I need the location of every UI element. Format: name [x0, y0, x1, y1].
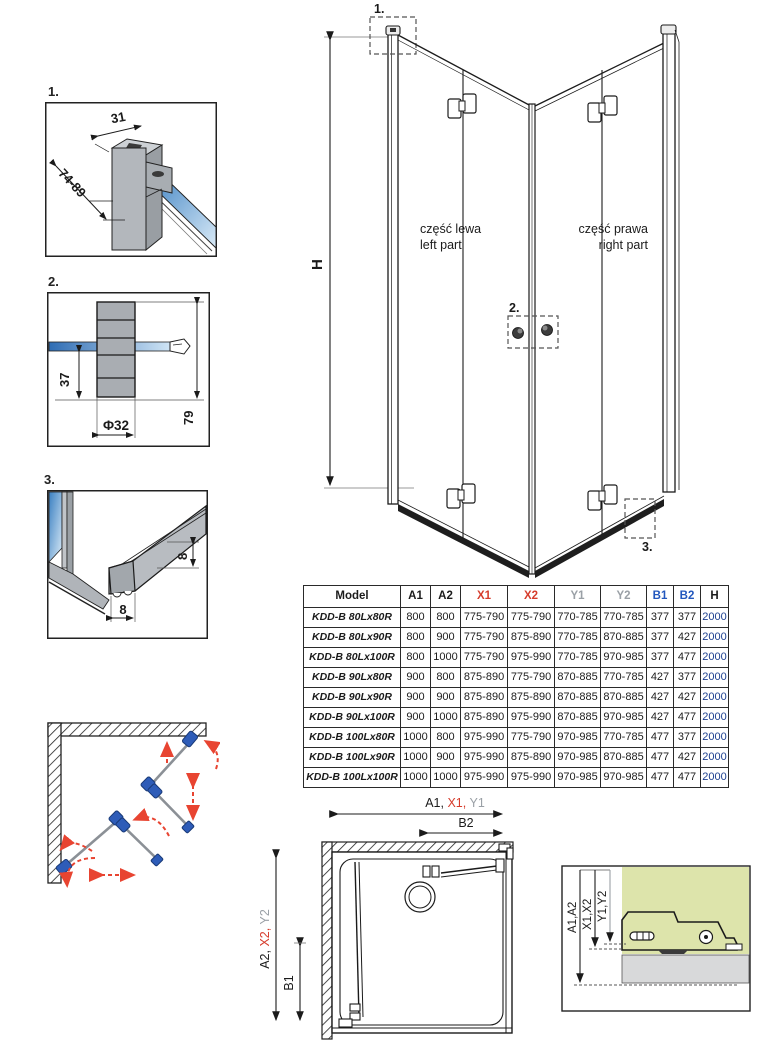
- col-b1: B1: [647, 586, 674, 608]
- svg-text:79: 79: [181, 411, 196, 425]
- svg-text:8: 8: [119, 602, 126, 617]
- col-b2: B2: [674, 586, 701, 608]
- table-row: KDD-B 90Lx100R9001000875-890975-990870-8…: [304, 708, 729, 728]
- table-row: KDD-B 100Lx100R10001000975-990975-990970…: [304, 768, 729, 788]
- dim-x1x2-label: X1,X2: [582, 899, 594, 930]
- main-enclosure-drawing: H 1.: [280, 0, 740, 585]
- dim-top-width: A1, X1, Y1: [338, 796, 502, 814]
- detail-3-label: 3.: [44, 472, 55, 487]
- svg-text:H: H: [309, 259, 326, 270]
- col-a1: A1: [401, 586, 431, 608]
- knob-left: [513, 328, 524, 339]
- left-wall-profile: [386, 26, 400, 504]
- col-model: Model: [304, 586, 401, 608]
- table-row: KDD-B 80Lx100R8001000775-790975-990770-7…: [304, 648, 729, 668]
- svg-text:B2: B2: [458, 816, 473, 830]
- svg-text:2.: 2.: [509, 301, 519, 315]
- svg-text:Φ32: Φ32: [103, 418, 129, 433]
- svg-text:1.: 1.: [374, 2, 384, 16]
- dim-left-height: A2, X2, Y2: [258, 858, 276, 1020]
- table-row: KDD-B 90Lx80R900800875-890775-790870-885…: [304, 668, 729, 688]
- left-part-label-pl: część lewa: [420, 222, 481, 236]
- right-part-label-pl: część prawa: [579, 222, 649, 236]
- dim-y1y2-label: Y1,Y2: [597, 891, 609, 922]
- dim-a1a2-label: A1,A2: [567, 902, 579, 933]
- svg-text:8: 8: [175, 553, 190, 560]
- knob-right: [542, 325, 553, 336]
- col-x1: X1: [461, 586, 508, 608]
- section-detail-drawing: A1,A2 X1,X2 Y1,Y2: [558, 858, 758, 1016]
- dim-b2: B2: [428, 816, 502, 833]
- detail-1-drawing: 31 74-89: [45, 102, 217, 257]
- table-row: KDD-B 100Lx80R1000800975-990775-790970-9…: [304, 728, 729, 748]
- table-header-row: Model A1 A2 X1 X2 Y1 Y2 B1 B2 H: [304, 586, 729, 608]
- technical-drawing-page: 1. 31: [0, 0, 780, 1044]
- table-row: KDD-B 90Lx90R900900875-890875-890870-885…: [304, 688, 729, 708]
- svg-text:A2, X2, Y2: A2, X2, Y2: [258, 909, 272, 969]
- right-part-label-en: right part: [599, 238, 649, 252]
- detail-3-drawing: 8 8: [47, 490, 208, 639]
- col-a2: A2: [431, 586, 461, 608]
- motion-arrows: [62, 742, 218, 884]
- svg-text:31: 31: [110, 109, 127, 126]
- table-row: KDD-B 80Lx80R800800775-790775-790770-785…: [304, 608, 729, 628]
- col-y2: Y2: [601, 586, 647, 608]
- tray-edge-section: [622, 955, 749, 983]
- dim-b1: B1: [282, 943, 306, 1020]
- detail-1-label: 1.: [48, 84, 59, 99]
- svg-text:37: 37: [57, 373, 72, 387]
- folded-door-left: [66, 821, 156, 865]
- detail-2-drawing: 37 79 Φ32: [47, 292, 210, 447]
- col-y1: Y1: [555, 586, 601, 608]
- left-part-label-en: left part: [420, 238, 462, 252]
- plan-view-drawing: A1, X1, Y1 B2: [255, 795, 525, 1044]
- spec-table: Model A1 A2 X1 X2 Y1 Y2 B1 B2 H KDD-B 80…: [303, 585, 729, 788]
- detail-2-label: 2.: [48, 274, 59, 289]
- right-wall-profile: [661, 25, 679, 492]
- svg-text:A1, X1, Y1: A1, X1, Y1: [425, 796, 485, 810]
- knob-profile: [97, 302, 135, 397]
- col-x2: X2: [508, 586, 555, 608]
- table-row: KDD-B 80Lx90R800900775-790875-890770-785…: [304, 628, 729, 648]
- right-door-panel: [535, 43, 664, 578]
- col-h: H: [701, 586, 729, 608]
- svg-text:3.: 3.: [642, 540, 652, 554]
- svg-text:B1: B1: [282, 975, 296, 990]
- folding-doors-scheme: [40, 715, 220, 895]
- table-row: KDD-B 100Lx90R1000900975-990875-890970-9…: [304, 748, 729, 768]
